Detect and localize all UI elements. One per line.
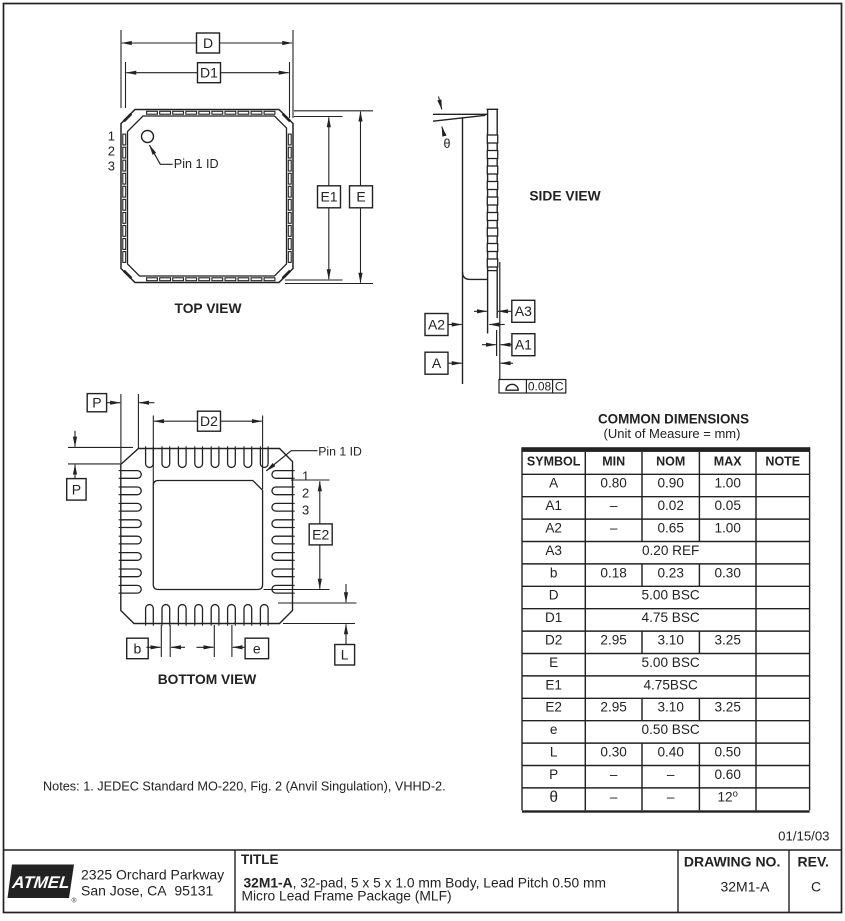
svg-text:Notes: 1. JEDEC Standard MO-22: Notes: 1. JEDEC Standard MO-220, Fig. 2 … bbox=[43, 779, 446, 793]
svg-text:0.08: 0.08 bbox=[528, 380, 552, 394]
svg-text:3.25: 3.25 bbox=[714, 700, 740, 715]
svg-text:A: A bbox=[432, 355, 442, 371]
svg-text:01/15/03: 01/15/03 bbox=[778, 829, 829, 844]
svg-text:SYMBOL: SYMBOL bbox=[527, 454, 581, 468]
svg-text:0.50: 0.50 bbox=[714, 745, 741, 760]
svg-text:D1: D1 bbox=[200, 65, 218, 81]
svg-text:E: E bbox=[549, 655, 558, 670]
svg-text:2.95: 2.95 bbox=[600, 700, 626, 715]
svg-text:4.75 BSC: 4.75 BSC bbox=[642, 610, 700, 625]
svg-text:L: L bbox=[550, 745, 558, 760]
svg-text:1.00: 1.00 bbox=[714, 476, 741, 491]
svg-text:San Jose, CA 95131: San Jose, CA 95131 bbox=[81, 883, 214, 899]
svg-text:D2: D2 bbox=[545, 633, 562, 648]
svg-text:E2: E2 bbox=[545, 700, 562, 715]
svg-text:REV.: REV. bbox=[798, 853, 829, 869]
svg-text:2: 2 bbox=[108, 144, 115, 159]
svg-text:MIN: MIN bbox=[602, 454, 625, 468]
svg-text:A1: A1 bbox=[515, 337, 532, 353]
svg-text:e: e bbox=[550, 722, 558, 737]
svg-text:P: P bbox=[92, 395, 101, 411]
svg-text:–: – bbox=[610, 521, 618, 536]
svg-text:1: 1 bbox=[108, 129, 115, 144]
svg-text:3.25: 3.25 bbox=[714, 633, 740, 648]
svg-text:b: b bbox=[134, 640, 142, 656]
svg-text:E1: E1 bbox=[320, 189, 337, 205]
svg-text:–: – bbox=[610, 789, 618, 804]
svg-text:–: – bbox=[610, 498, 618, 513]
svg-text:E1: E1 bbox=[545, 677, 562, 692]
svg-text:0.90: 0.90 bbox=[657, 476, 684, 491]
svg-text:A: A bbox=[549, 476, 559, 491]
svg-text:ATMEL: ATMEL bbox=[10, 873, 70, 892]
svg-text:4.75BSC: 4.75BSC bbox=[643, 677, 698, 692]
svg-text:E: E bbox=[356, 189, 365, 205]
svg-text:–: – bbox=[610, 767, 618, 782]
svg-text:Pin 1 ID: Pin 1 ID bbox=[174, 157, 219, 171]
svg-text:5.00 BSC: 5.00 BSC bbox=[642, 588, 700, 603]
svg-text:0.65: 0.65 bbox=[657, 521, 683, 536]
svg-text:D: D bbox=[203, 35, 213, 51]
svg-text:A3: A3 bbox=[545, 543, 562, 558]
svg-text:Micro Lead Frame Package (MLF): Micro Lead Frame Package (MLF) bbox=[242, 889, 452, 904]
svg-text:®: ® bbox=[72, 897, 77, 905]
svg-text:0.23: 0.23 bbox=[657, 565, 683, 580]
svg-text:–: – bbox=[667, 767, 675, 782]
svg-text:P: P bbox=[549, 767, 558, 782]
svg-text:b: b bbox=[550, 565, 558, 580]
svg-text:NOTE: NOTE bbox=[765, 454, 800, 468]
svg-text:NOM: NOM bbox=[656, 454, 685, 468]
svg-text:5.00 BSC: 5.00 BSC bbox=[642, 655, 700, 670]
svg-text:Pin 1 ID: Pin 1 ID bbox=[318, 444, 362, 458]
svg-text:e: e bbox=[253, 640, 261, 656]
svg-text:MAX: MAX bbox=[714, 454, 742, 468]
svg-text:TITLE: TITLE bbox=[241, 852, 279, 867]
svg-text:θ: θ bbox=[444, 137, 451, 151]
svg-text:A3: A3 bbox=[515, 303, 532, 319]
svg-text:E2: E2 bbox=[312, 526, 329, 542]
svg-text:SIDE VIEW: SIDE VIEW bbox=[529, 189, 601, 204]
svg-text:3: 3 bbox=[302, 503, 309, 518]
svg-text:0.02: 0.02 bbox=[657, 498, 683, 513]
svg-text:DRAWING NO.: DRAWING NO. bbox=[684, 853, 780, 869]
svg-text:3.10: 3.10 bbox=[657, 633, 684, 648]
svg-text:32M1-A: 32M1-A bbox=[720, 879, 770, 895]
svg-text:A2: A2 bbox=[428, 316, 445, 332]
svg-text:C: C bbox=[555, 380, 564, 394]
svg-text:D1: D1 bbox=[545, 610, 562, 625]
svg-text:(Unit of Measure = mm): (Unit of Measure = mm) bbox=[604, 426, 741, 441]
svg-text:D: D bbox=[549, 588, 559, 603]
svg-text:0.18: 0.18 bbox=[600, 565, 626, 580]
svg-text:P: P bbox=[72, 481, 81, 497]
svg-text:TOP VIEW: TOP VIEW bbox=[175, 301, 243, 316]
svg-text:0.40: 0.40 bbox=[657, 745, 684, 760]
svg-text:2325 Orchard Parkway: 2325 Orchard Parkway bbox=[81, 867, 224, 883]
svg-text:L: L bbox=[341, 647, 349, 663]
svg-text:COMMON DIMENSIONS: COMMON DIMENSIONS bbox=[598, 412, 749, 427]
svg-text:0.05: 0.05 bbox=[714, 498, 740, 513]
svg-text:0.60: 0.60 bbox=[714, 767, 741, 782]
svg-text:3: 3 bbox=[108, 159, 115, 174]
svg-text:2: 2 bbox=[302, 486, 309, 501]
svg-text:θ: θ bbox=[549, 789, 558, 806]
svg-text:–: – bbox=[667, 789, 675, 804]
svg-text:2.95: 2.95 bbox=[600, 633, 626, 648]
svg-text:1: 1 bbox=[302, 469, 309, 484]
svg-text:A2: A2 bbox=[545, 521, 562, 536]
svg-text:C: C bbox=[811, 879, 821, 895]
svg-text:A1: A1 bbox=[545, 498, 562, 513]
svg-text:0.30: 0.30 bbox=[714, 565, 741, 580]
svg-text:1.00: 1.00 bbox=[714, 521, 741, 536]
svg-text:BOTTOM VIEW: BOTTOM VIEW bbox=[158, 672, 258, 687]
svg-text:0.20 REF: 0.20 REF bbox=[642, 543, 699, 558]
svg-text:D2: D2 bbox=[200, 413, 218, 429]
svg-text:0.80: 0.80 bbox=[600, 476, 627, 491]
svg-text:3.10: 3.10 bbox=[657, 700, 684, 715]
svg-text:0.30: 0.30 bbox=[600, 745, 627, 760]
svg-text:0.50 BSC: 0.50 BSC bbox=[642, 722, 700, 737]
